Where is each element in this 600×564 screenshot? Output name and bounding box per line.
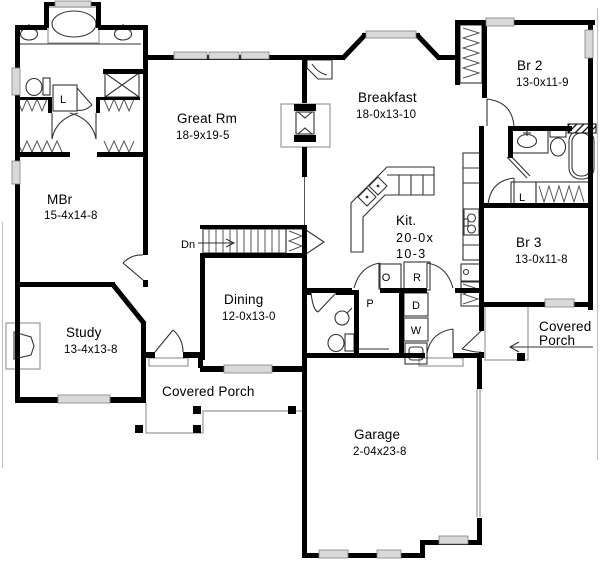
double-fireplace	[281, 104, 330, 147]
bathtub-icon	[52, 11, 96, 37]
room-dims-br2: 13-0x11-9	[516, 77, 569, 89]
front-porch-label: Covered Porch	[162, 384, 255, 399]
study-fireplace	[6, 323, 40, 369]
powder-room-fixtures	[328, 308, 354, 352]
room-label-kitchen: Kit.	[396, 213, 416, 228]
room-label-study: Study	[66, 325, 102, 340]
garage-step	[419, 358, 463, 366]
room-dims-garage: 2-04x23-8	[353, 446, 407, 458]
dryer-label: D	[412, 300, 420, 312]
hall-bath-fixtures	[511, 124, 596, 179]
room-label-br2: Br 2	[517, 58, 543, 73]
corner-cabinet	[307, 60, 332, 79]
room-dims-breakfast: 18-0x13-10	[356, 109, 416, 121]
floor-plan: MBr 15-4x14-8 Great Rm 18-9x19-5 Breakfa…	[0, 0, 600, 564]
walls	[15, 2, 595, 558]
range-label: R	[413, 272, 421, 284]
room-label-mbr: MBr	[47, 192, 73, 207]
side-porch-outline	[485, 307, 528, 361]
room-dims-br3: 13-0x11-8	[515, 254, 568, 266]
stairs	[198, 229, 286, 253]
room-label-garage: Garage	[354, 427, 400, 442]
toilet-icon	[551, 138, 566, 156]
sink-icon	[518, 135, 537, 148]
oven-label: O	[382, 272, 391, 284]
toilet-icon	[26, 79, 42, 96]
pantry-shelves	[357, 311, 389, 349]
room-label-br3: Br 3	[516, 235, 542, 250]
room-dims-dining: 12-0x13-0	[222, 311, 276, 323]
doors	[52, 88, 530, 353]
linen-label-hall: L	[519, 192, 525, 204]
pantry-label: P	[366, 298, 373, 310]
sink-icon	[335, 311, 349, 325]
room-dims-kitchen-2: 10-3	[396, 247, 427, 261]
room-dims-mbr: 15-4x14-8	[44, 210, 98, 222]
side-porch-label-2: Porch	[539, 333, 575, 348]
floor-plan-drawing: MBr 15-4x14-8 Great Rm 18-9x19-5 Breakfa…	[0, 0, 600, 564]
room-label-dining: Dining	[224, 292, 263, 307]
side-porch-label-1: Covered	[539, 319, 591, 334]
room-label-great-room: Great Rm	[177, 111, 237, 126]
toilet-icon	[328, 335, 344, 352]
room-label-breakfast: Breakfast	[358, 90, 417, 105]
room-dims-study: 13-4x13-8	[64, 344, 118, 356]
stairs-label: Dn	[181, 239, 195, 251]
master-bath-fixtures	[20, 7, 143, 97]
washer-label: W	[411, 325, 422, 337]
room-dims-great-room: 18-9x19-5	[176, 130, 230, 142]
linen-label-master: L	[60, 94, 66, 106]
room-dims-kitchen-1: 20-0x	[396, 231, 434, 245]
garage-door	[477, 389, 480, 517]
